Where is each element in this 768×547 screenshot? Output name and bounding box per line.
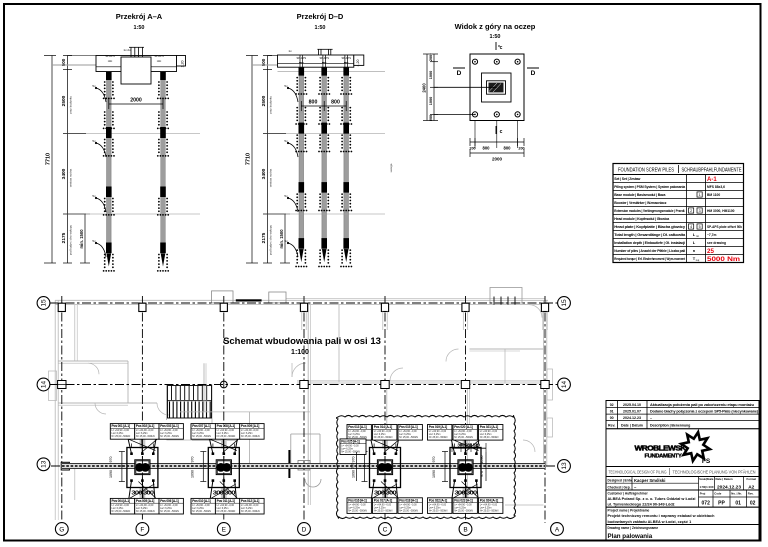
- svg-text:SP-APS: SP-APS: [105, 54, 115, 58]
- svg-text:1:50: 1:50: [314, 25, 325, 31]
- svg-text:1:50: 1:50: [133, 25, 144, 31]
- svg-text:N= 25,00 –500kN: N= 25,00 –500kN: [217, 510, 236, 513]
- svg-text:1: 1: [699, 193, 701, 197]
- svg-text:5x: 5x: [92, 239, 96, 243]
- svg-text:14: 14: [561, 381, 568, 389]
- svg-text:min. 1500: min. 1500: [279, 229, 284, 249]
- svg-text:przy budynku: przy budynku: [69, 96, 73, 114]
- svg-text:N= 25,00 –500kN: N= 25,00 –500kN: [136, 510, 155, 513]
- svg-text:Description | Benennung: Description | Benennung: [650, 424, 690, 428]
- svg-text:01: 01: [610, 410, 614, 414]
- svg-text:2175: 2175: [261, 232, 267, 243]
- svg-text:800: 800: [331, 100, 340, 106]
- svg-text:No. | Nr.: No. | Nr.: [731, 492, 742, 496]
- svg-text:2024.12.23: 2024.12.23: [623, 416, 641, 420]
- svg-text:2025.04.10: 2025.04.10: [623, 403, 641, 407]
- svg-text:1090: 1090: [352, 470, 356, 478]
- svg-text:970: 970: [480, 471, 484, 477]
- svg-text:▪▪▪▪: ▪▪▪▪: [108, 59, 113, 63]
- svg-text:tot: tot: [696, 235, 699, 238]
- svg-text:800: 800: [309, 100, 318, 106]
- svg-text:Head plate | Kopfplatte | Blac: Head plate | Kopfplatte | Blacha głowicy: [614, 225, 685, 229]
- svg-text:SP-APS: SP-APS: [154, 54, 164, 58]
- svg-text:1:100: 1:100: [291, 349, 309, 356]
- svg-text:4: 4: [690, 225, 692, 229]
- svg-text:15: 15: [41, 299, 48, 307]
- svg-text:Pos 022 [A-1]: Pos 022 [A-1]: [429, 498, 447, 502]
- svg-text:Rev.: Rev.: [748, 492, 754, 496]
- svg-text:budowlanych zakładu ALBEA w Ło: budowlanych zakładu ALBEA w Łodzi, część…: [608, 520, 692, 524]
- svg-text:A-1: A-1: [707, 177, 717, 183]
- svg-text:pod budyn.i dno wykopu: pod budyn.i dno wykopu: [269, 224, 273, 255]
- svg-text:PP: PP: [718, 501, 725, 507]
- svg-text:Pos 019 [A-1]: Pos 019 [A-1]: [429, 425, 447, 429]
- svg-text:Pos 009 [A-1]: Pos 009 [A-1]: [241, 424, 259, 428]
- svg-text:MFS 88x3,6: MFS 88x3,6: [707, 185, 725, 189]
- svg-text:3400: 3400: [261, 168, 267, 179]
- svg-text:Head module | Kopfmodul | Głow: Head module | Kopfmodul | Głowica: [614, 217, 669, 221]
- svg-text:Pos 011 [A-1]: Pos 011 [A-1]: [217, 499, 235, 503]
- svg-text:1,20: 1,20: [181, 61, 185, 68]
- svg-text:Pos 015 [A-1]: Pos 015 [A-1]: [399, 425, 417, 429]
- svg-text:Pos 016 [A-1]: Pos 016 [A-1]: [348, 498, 366, 502]
- svg-text:▪▪▪▪: ▪▪▪▪: [322, 61, 327, 65]
- svg-text:00: 00: [610, 416, 614, 420]
- svg-text:Date | Datum: Date | Datum: [621, 424, 643, 428]
- svg-text:Scale|Skala: Scale|Skala: [699, 477, 713, 481]
- svg-text:przy budynku: przy budynku: [269, 96, 273, 114]
- svg-text:13: 13: [41, 460, 48, 468]
- svg-text:Base module | Basismodul | Baz: Base module | Basismodul | Baza: [614, 193, 665, 197]
- svg-text:Pos 021 [A-1]: Pos 021 [A-1]: [480, 425, 498, 429]
- svg-text:Pos 006 [A-1]: Pos 006 [A-1]: [160, 499, 178, 503]
- svg-text:N= 25,00 –500kN: N= 25,00 –500kN: [399, 509, 418, 512]
- svg-text:200: 200: [429, 55, 433, 61]
- svg-text:Pos 008 [A-1]: Pos 008 [A-1]: [217, 424, 235, 428]
- svg-text:Drawing name | Zeichnungsname: Drawing name | Zeichnungsname: [608, 526, 659, 530]
- svg-text:N= 25,00 –500kN: N= 25,00 –500kN: [241, 510, 260, 513]
- svg-text:N= 25,00 –500kN: N= 25,00 –500kN: [160, 435, 179, 438]
- svg-text:N= 25,00 –500kN: N= 25,00 –500kN: [192, 435, 211, 438]
- svg-text:uwaga: uwaga: [389, 163, 393, 172]
- svg-text:Projekt techniczny remontu i n: Projekt techniczny remontu i naprawy est…: [608, 514, 716, 518]
- svg-text:5x: 5x: [284, 239, 288, 243]
- svg-text:TECHNOLOGICAL DESIGN OF PILING: TECHNOLOGICAL DESIGN OF PILING: [609, 470, 667, 475]
- svg-text:5: 5: [699, 225, 701, 229]
- svg-text:HM 3000, HM1100: HM 3000, HM1100: [707, 209, 735, 213]
- svg-text:Pos 013 [A-1]: Pos 013 [A-1]: [348, 425, 366, 429]
- svg-text:C: C: [383, 526, 388, 533]
- svg-text:N= 25,00 –500kN: N= 25,00 –500kN: [429, 436, 448, 439]
- svg-text:630: 630: [351, 463, 355, 469]
- svg-text:N= 25,00 –500kN: N= 25,00 –500kN: [480, 509, 499, 512]
- svg-text:Designed | Entw.: Designed | Entw.: [608, 479, 634, 483]
- svg-text:pod budyn.i dno wykopu: pod budyn.i dno wykopu: [69, 224, 73, 255]
- svg-text:970: 970: [109, 457, 113, 463]
- svg-text:Pos 004 [A-1]: Pos 004 [A-1]: [112, 499, 130, 503]
- svg-text:Date | Datum: Date | Datum: [716, 477, 734, 481]
- svg-text:Dodano blachy połączenia z ocz: Dodano blachy połączenia z oczepem SP5-P…: [650, 410, 759, 414]
- svg-text:FOUNDATION SCREW PILES: FOUNDATION SCREW PILES: [618, 167, 674, 173]
- svg-text:02: 02: [750, 501, 756, 507]
- svg-text:970: 970: [190, 457, 194, 463]
- svg-text:1000: 1000: [429, 97, 433, 105]
- svg-text:N= 25,00 –500kN: N= 25,00 –500kN: [160, 510, 179, 513]
- svg-text:13: 13: [561, 462, 568, 470]
- svg-text:2175: 2175: [61, 232, 67, 243]
- svg-text:c: c: [500, 45, 503, 51]
- svg-text:15: 15: [561, 299, 568, 307]
- svg-text:N= 25,00 –500kN: N= 25,00 –500kN: [454, 436, 473, 439]
- svg-text:N= 25,00 –500kN: N= 25,00 –500kN: [217, 435, 236, 438]
- svg-text:Pos 012 [A-1]: Pos 012 [A-1]: [241, 499, 259, 503]
- svg-text:F: F: [140, 526, 144, 533]
- svg-text:2: 2: [690, 209, 692, 213]
- svg-text:Required torque | Erf. Eindreh: Required torque | Erf. Eindrehmoment | W…: [614, 257, 686, 261]
- svg-text:N= 25,00 –500kN: N= 25,00 –500kN: [374, 436, 393, 439]
- svg-text:5x: 5x: [284, 194, 288, 198]
- svg-text:N= 25,00 –500kN: N= 25,00 –500kN: [429, 509, 448, 512]
- svg-text:N= 25,00 –500kN: N= 25,00 –500kN: [399, 436, 418, 439]
- svg-text:Total length | Gesamtlänge | D: Total length | Gesamtlänge | Dł. całkowi…: [614, 233, 685, 237]
- svg-text:N= 25,00 –500kN: N= 25,00 –500kN: [480, 436, 499, 439]
- svg-text:N= 25,00 –500kN: N= 25,00 –500kN: [192, 510, 211, 513]
- svg-text:2400: 2400: [422, 83, 427, 93]
- svg-text:3: 3: [699, 209, 701, 213]
- svg-text:Pos 023 [A-1]: Pos 023 [A-1]: [454, 498, 472, 502]
- svg-text:Piling system | PSM System | S: Piling system | PSM System | System palo…: [614, 185, 685, 189]
- svg-text:D: D: [302, 526, 307, 533]
- svg-text:▪▪▪▪: ▪▪▪▪: [157, 59, 162, 63]
- svg-text:see drawing: see drawing: [707, 241, 726, 245]
- svg-text:Pos 018 [A-1]: Pos 018 [A-1]: [399, 498, 417, 502]
- svg-text:5x: 5x: [92, 139, 96, 143]
- svg-text:970: 970: [432, 457, 436, 463]
- svg-text:800: 800: [504, 146, 512, 151]
- svg-text:FUNDAMENTY: FUNDAMENTY: [645, 454, 683, 460]
- svg-text:Pos 017 [A-1]: Pos 017 [A-1]: [374, 498, 392, 502]
- svg-text:Code: Code: [714, 492, 721, 496]
- svg-text:B: B: [463, 526, 467, 533]
- svg-text:Format: Format: [747, 477, 757, 481]
- svg-text:Plan palowania: Plan palowania: [608, 533, 653, 540]
- svg-text:970: 970: [352, 457, 356, 463]
- svg-text:1090: 1090: [190, 470, 194, 478]
- svg-text:A: A: [555, 526, 560, 533]
- svg-text:▪▪▪▪: ▪▪▪▪: [299, 61, 304, 65]
- svg-text:Przekrój D–D: Przekrój D–D: [297, 12, 344, 21]
- svg-text:~7,7m: ~7,7m: [707, 233, 717, 237]
- svg-text:Number of piles | Anzahl der P: Number of piles | Anzahl der Pfähle | Li…: [614, 249, 685, 253]
- svg-text:D: D: [457, 70, 462, 77]
- svg-text:Extension modules | Verlängeru: Extension modules | Verlängerungsmodule …: [614, 209, 685, 213]
- svg-text:Pos 024 [A-1]: Pos 024 [A-1]: [480, 498, 498, 502]
- svg-text:Pos 005 [A-1]: Pos 005 [A-1]: [136, 499, 154, 503]
- svg-text:N= 25,00 –500kN: N= 25,00 –500kN: [374, 509, 393, 512]
- svg-text:02: 02: [610, 403, 614, 407]
- svg-text:▪▪▪▪: ▪▪▪▪: [344, 61, 349, 65]
- svg-text:1090: 1090: [480, 456, 484, 464]
- svg-text:N= 25,00 –500kN: N= 25,00 –500kN: [348, 509, 367, 512]
- svg-text:5x: 5x: [284, 139, 288, 143]
- svg-text:Pos 025 [A-1]: Pos 025 [A-1]: [341, 440, 359, 444]
- svg-text:2500: 2500: [61, 95, 67, 106]
- svg-text:Pos 020 [A-1]: Pos 020 [A-1]: [454, 425, 472, 429]
- svg-text:Przekrój A–A: Przekrój A–A: [116, 12, 163, 21]
- svg-text:25: 25: [707, 248, 714, 255]
- svg-text:1090: 1090: [109, 470, 113, 478]
- svg-text:E: E: [222, 526, 227, 533]
- svg-text:Set | Set | Zestaw: Set | Set | Zestaw: [614, 177, 640, 181]
- svg-text:Pos 007 [A-1]: Pos 007 [A-1]: [192, 424, 210, 428]
- svg-text:N= 25,00 –500kN: N= 25,00 –500kN: [112, 510, 131, 513]
- svg-text:2025.01.07: 2025.01.07: [623, 410, 641, 414]
- svg-text:3400: 3400: [61, 168, 67, 179]
- svg-text:WROBLEWSKI: WROBLEWSKI: [635, 444, 688, 453]
- svg-text:Installation depth | Einbautie: Installation depth | Einbautiefe | Gł. i…: [614, 241, 685, 245]
- svg-text:5x: 5x: [284, 84, 288, 88]
- svg-text:SP-APS: SP-APS: [297, 56, 307, 60]
- svg-text:5000 Nm: 5000 Nm: [707, 256, 741, 263]
- svg-text:01: 01: [735, 501, 741, 507]
- svg-text:N= 25,00 –500kN: N= 25,00 –500kN: [136, 435, 155, 438]
- svg-text:SP-APS: SP-APS: [319, 56, 329, 60]
- svg-text:Project name | Projektname: Project name | Projektname: [608, 509, 650, 513]
- svg-text:ALBEA Poland Sp. z o. o. Tubes: ALBEA Poland Sp. z o. o. Tubes Oddział w…: [608, 497, 696, 501]
- svg-text:Rev.: Rev.: [608, 424, 615, 428]
- svg-text:Kacper Smólski: Kacper Smólski: [634, 478, 665, 483]
- svg-text:Schemat wbudowania pali w osi: Schemat wbudowania pali w osi 13: [223, 336, 381, 347]
- svg-text:1:50: 1:50: [489, 34, 500, 40]
- svg-text:Customer | Auftragnehmer: Customer | Auftragnehmer: [608, 491, 649, 495]
- svg-text:1090: 1090: [432, 470, 436, 478]
- svg-text:Checked | Gep.: Checked | Gep.: [608, 485, 631, 489]
- svg-text:FS: FS: [702, 458, 711, 465]
- svg-text:Pos 014 [A-1]: Pos 014 [A-1]: [374, 425, 392, 429]
- svg-text:SCHRAUBPFAHLFUNDAMENTE: SCHRAUBPFAHLFUNDAMENTE: [682, 167, 742, 173]
- svg-text:wrstwa nośna: wrstwa nośna: [269, 168, 273, 187]
- svg-text:SP-APS: SP-APS: [341, 56, 351, 60]
- svg-text:Pos 002 [A-1]: Pos 002 [A-1]: [136, 424, 154, 428]
- svg-text:14: 14: [41, 381, 48, 389]
- svg-text:wrstwa nośna: wrstwa nośna: [69, 168, 73, 187]
- svg-text:5x: 5x: [92, 84, 96, 88]
- svg-text:min. 1500: min. 1500: [79, 229, 84, 249]
- svg-text:N= 25,00 –500kN: N= 25,00 –500kN: [112, 435, 131, 438]
- svg-text:Booster | Verstärker | Wzmacni: Booster | Verstärker | Wzmacniacz: [614, 201, 666, 205]
- svg-text:TECHNOLOGISCHE PLANUNG VON PFÄ: TECHNOLOGISCHE PLANUNG VON PFÄHLEN: [673, 469, 756, 475]
- svg-text:2500: 2500: [261, 95, 267, 106]
- svg-text:2000: 2000: [130, 98, 142, 104]
- svg-text:ul. Tymienieckiego 22/24 90-34: ul. Tymienieckiego 22/24 90-349 Łódź: [608, 502, 675, 506]
- svg-text:Aktualizacja położenia pali po: Aktualizacja położenia pali po zakończen…: [650, 403, 754, 407]
- svg-text:BM 1100: BM 1100: [707, 193, 720, 197]
- svg-text:5x: 5x: [92, 194, 96, 198]
- svg-text:N= 25,00 –500kN: N= 25,00 –500kN: [241, 435, 260, 438]
- svg-text:–: –: [650, 416, 652, 420]
- svg-text:Widok z góry na oczep: Widok z góry na oczep: [455, 22, 536, 31]
- svg-text:SP-APS plate offset 50k: SP-APS plate offset 50k: [707, 225, 742, 229]
- svg-text:c: c: [500, 129, 503, 135]
- svg-text:N= 25,00 –500kN: N= 25,00 –500kN: [341, 451, 360, 454]
- svg-text:1000: 1000: [429, 71, 433, 79]
- svg-text:Pos 003 [A-1]: Pos 003 [A-1]: [160, 424, 178, 428]
- svg-text:N= 25,00 –500kN: N= 25,00 –500kN: [454, 509, 473, 512]
- svg-text:4,20: 4,20: [356, 60, 360, 67]
- svg-text:G: G: [59, 526, 64, 533]
- svg-text:800: 800: [483, 146, 491, 151]
- svg-text:Pos 001 [A-1]: Pos 001 [A-1]: [112, 424, 130, 428]
- svg-text:Pos 010 [A-1]: Pos 010 [A-1]: [192, 499, 210, 503]
- svg-text:D: D: [531, 70, 536, 77]
- svg-text:1x 2x: 1x 2x: [123, 48, 131, 52]
- svg-text:2000: 2000: [492, 157, 503, 162]
- svg-text:1:50|1:100: 1:50|1:100: [700, 485, 714, 489]
- svg-text:Proj: Proj: [700, 492, 706, 496]
- svg-text:072: 072: [702, 501, 711, 507]
- svg-text:1x: 1x: [288, 49, 292, 53]
- svg-text:7710: 7710: [246, 153, 252, 165]
- svg-text:7710: 7710: [46, 153, 52, 165]
